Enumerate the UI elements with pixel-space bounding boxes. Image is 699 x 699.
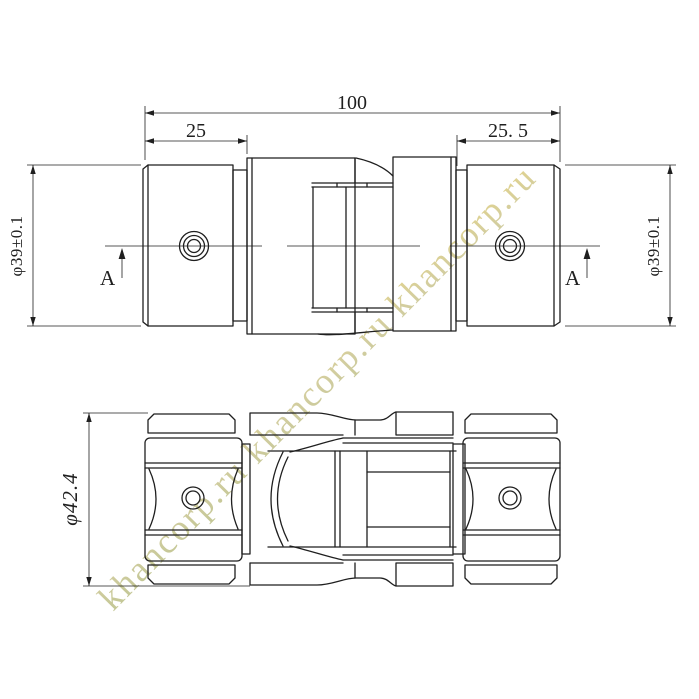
right-hex-hub <box>463 414 560 584</box>
technical-drawing: khancorp.ru khancorp.ru khancorp.ru <box>0 0 699 699</box>
dim-left-hub-text: 25 <box>186 120 206 142</box>
dim-bottom-diameter-text: φ42.4 <box>58 472 82 525</box>
section-marker-right: A <box>565 248 590 290</box>
section-label-left: A <box>100 266 116 290</box>
section-marker-left: A <box>100 248 125 290</box>
top-view-dimensions: 100 25 25. 5 φ39±0.1 φ39±0.1 <box>7 92 676 326</box>
left-step-ring <box>233 170 247 321</box>
drawing-canvas: khancorp.ru khancorp.ru khancorp.ru <box>0 0 699 699</box>
dim-right-diameter-text: φ39±0.1 <box>644 216 663 277</box>
dimension-right-hub: 25. 5 <box>457 120 560 144</box>
dim-overall-length-text: 100 <box>337 92 367 114</box>
top-view: 100 25 25. 5 φ39±0.1 φ39±0.1 <box>7 92 676 335</box>
extension-lines <box>27 106 676 326</box>
dimension-right-diameter: φ39±0.1 <box>644 165 673 326</box>
dimension-left-hub: 25 <box>145 120 247 144</box>
dim-right-hub-text: 25. 5 <box>488 120 528 142</box>
section-label-right: A <box>565 266 581 290</box>
watermark-text: khancorp.ru khancorp.ru khancorp.ru <box>90 157 544 618</box>
watermark: khancorp.ru khancorp.ru khancorp.ru <box>90 157 544 618</box>
dim-left-diameter-text: φ39±0.1 <box>7 216 26 277</box>
dimension-overall-length: 100 <box>145 92 560 116</box>
dimension-left-diameter: φ39±0.1 <box>7 165 36 326</box>
